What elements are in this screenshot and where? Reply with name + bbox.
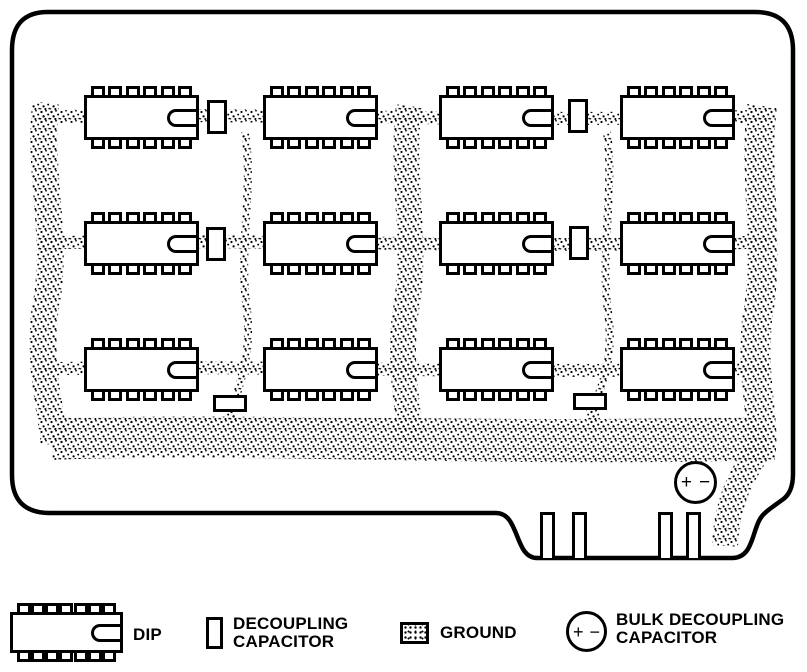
dip-pin [644, 389, 658, 401]
dip-pins [270, 212, 371, 224]
dip-notch [167, 235, 196, 253]
dip-pin [714, 212, 728, 224]
ground-icon [400, 622, 429, 644]
dip-pin [340, 263, 354, 275]
dip-pin [91, 212, 105, 224]
dip-pin [178, 338, 192, 350]
board-components [0, 0, 807, 672]
dip-chip [439, 221, 554, 266]
dip-pins [627, 263, 728, 275]
dip-pins [91, 137, 192, 149]
dip-pin [270, 389, 284, 401]
dip-pin [498, 338, 512, 350]
dip-pin [102, 650, 116, 662]
decoupling-capacitor [213, 395, 247, 412]
edge-connector-finger [658, 512, 673, 558]
decoupling-capacitor [569, 226, 589, 260]
dip-pin [161, 338, 175, 350]
dip-chip [439, 347, 554, 392]
dip-pin [533, 338, 547, 350]
dip-notch [91, 624, 120, 642]
dip-notch [167, 109, 196, 127]
decoupling-capacitor-icon [206, 617, 223, 649]
dip-pin [357, 338, 371, 350]
dip-pin [498, 389, 512, 401]
dip-notch [346, 109, 375, 127]
dip-pin [533, 86, 547, 98]
dip-pin [644, 263, 658, 275]
dip-notch [522, 235, 551, 253]
dip-pin [481, 389, 495, 401]
dip-chip [620, 347, 735, 392]
dip-pin [498, 86, 512, 98]
dip-pin [161, 137, 175, 149]
dip-pin [161, 86, 175, 98]
dip-pin [697, 137, 711, 149]
dip-pin [697, 86, 711, 98]
dip-pin [662, 137, 676, 149]
dip-pin [126, 338, 140, 350]
dip-chip [439, 95, 554, 140]
dip-pin [627, 212, 641, 224]
dip-pin [446, 212, 460, 224]
dip-pin [679, 338, 693, 350]
dip-chip [84, 347, 199, 392]
dip-pin [662, 86, 676, 98]
dip-pin [45, 650, 59, 662]
dip-pin [143, 137, 157, 149]
dip-pin [516, 263, 530, 275]
dip-pin [287, 263, 301, 275]
dip-pin [357, 263, 371, 275]
dip-pins [91, 212, 192, 224]
dip-pin [627, 137, 641, 149]
dip-pin [627, 86, 641, 98]
dip-pin [91, 86, 105, 98]
dip-pin [305, 263, 319, 275]
dip-chip [263, 95, 378, 140]
decoupling-capacitor [568, 99, 588, 133]
dip-pin [340, 212, 354, 224]
dip-pin [516, 389, 530, 401]
dip-pin [697, 338, 711, 350]
dip-pin [481, 338, 495, 350]
legend-label-ground: GROUND [440, 624, 517, 642]
dip-pin [322, 389, 336, 401]
dip-pin [679, 389, 693, 401]
dip-icon [10, 612, 123, 653]
dip-pin [662, 338, 676, 350]
dip-pin [498, 212, 512, 224]
decoupling-capacitor [573, 393, 607, 410]
dip-pins [627, 212, 728, 224]
edge-connector-finger [686, 512, 701, 558]
dip-pin [446, 338, 460, 350]
dip-pin [17, 650, 31, 662]
dip-pins [17, 650, 116, 662]
dip-pin [126, 389, 140, 401]
dip-pin [143, 86, 157, 98]
dip-pin [305, 212, 319, 224]
dip-pin [322, 263, 336, 275]
dip-pin [644, 137, 658, 149]
dip-pin [340, 137, 354, 149]
dip-pin [91, 338, 105, 350]
dip-pin [161, 263, 175, 275]
dip-notch [346, 235, 375, 253]
dip-pins [91, 263, 192, 275]
dip-chip [84, 221, 199, 266]
dip-pin [714, 389, 728, 401]
dip-pins [91, 389, 192, 401]
dip-pin [498, 137, 512, 149]
dip-pin [340, 86, 354, 98]
dip-pins [91, 338, 192, 350]
dip-pin [305, 137, 319, 149]
dip-notch [522, 109, 551, 127]
dip-pin [108, 212, 122, 224]
dip-pin [108, 86, 122, 98]
dip-pin [340, 338, 354, 350]
plus-symbol: + [681, 473, 692, 492]
dip-pin [714, 137, 728, 149]
dip-pin [627, 263, 641, 275]
dip-pin [126, 137, 140, 149]
dip-pin [644, 86, 658, 98]
dip-pin [481, 137, 495, 149]
dip-pins [270, 263, 371, 275]
edge-connector-finger [540, 512, 555, 558]
dip-pin [340, 389, 354, 401]
dip-pin [463, 86, 477, 98]
dip-pins [627, 137, 728, 149]
dip-pin [178, 137, 192, 149]
dip-pin [714, 263, 728, 275]
dip-pin [516, 86, 530, 98]
dip-pin [679, 212, 693, 224]
dip-pin [143, 263, 157, 275]
dip-chip [263, 347, 378, 392]
dip-pin [102, 603, 116, 615]
dip-pin [91, 389, 105, 401]
dip-pin [108, 137, 122, 149]
dip-pin [697, 212, 711, 224]
dip-pin [322, 137, 336, 149]
dip-pin [305, 86, 319, 98]
decoupling-capacitor [207, 100, 227, 134]
dip-pin [74, 650, 88, 662]
dip-pin [446, 263, 460, 275]
dip-pin [31, 603, 45, 615]
dip-pin [305, 389, 319, 401]
dip-pin [357, 212, 371, 224]
dip-pin [161, 212, 175, 224]
dip-pin [498, 263, 512, 275]
dip-pin [287, 86, 301, 98]
bulk-decoupling-capacitor: + − [674, 461, 717, 504]
dip-pin [178, 212, 192, 224]
dip-pin [74, 603, 88, 615]
dip-pin [533, 137, 547, 149]
dip-pin [481, 86, 495, 98]
bulk-decoupling-capacitor-icon: + − [566, 611, 607, 652]
dip-pin [143, 338, 157, 350]
dip-pin [178, 389, 192, 401]
dip-pin [662, 212, 676, 224]
dip-pins [446, 263, 547, 275]
dip-chip [620, 95, 735, 140]
dip-pin [91, 263, 105, 275]
legend-label-bulk-decoupling-capacitor: BULK DECOUPLING CAPACITOR [616, 611, 784, 646]
dip-pin [287, 212, 301, 224]
dip-pin [88, 603, 102, 615]
dip-pin [287, 389, 301, 401]
dip-pin [357, 389, 371, 401]
dip-pin [126, 263, 140, 275]
dip-pins [446, 212, 547, 224]
dip-notch [703, 361, 732, 379]
dip-pin [446, 86, 460, 98]
dip-pins [17, 603, 116, 615]
dip-pin [322, 86, 336, 98]
dip-pin [463, 338, 477, 350]
dip-pin [322, 338, 336, 350]
dip-notch [703, 109, 732, 127]
dip-pin [59, 650, 73, 662]
dip-pin [108, 338, 122, 350]
dip-pin [270, 263, 284, 275]
dip-pin [463, 212, 477, 224]
legend-label-dip: DIP [133, 626, 162, 644]
plus-symbol: + [573, 623, 584, 641]
dip-pins [627, 338, 728, 350]
dip-pin [463, 389, 477, 401]
dip-pin [679, 86, 693, 98]
edge-connector-finger [572, 512, 587, 558]
dip-notch [346, 361, 375, 379]
dip-pins [270, 137, 371, 149]
dip-pin [533, 212, 547, 224]
dip-pin [108, 263, 122, 275]
dip-pin [108, 389, 122, 401]
dip-pin [143, 389, 157, 401]
dip-pin [679, 137, 693, 149]
dip-pin [463, 137, 477, 149]
dip-pin [161, 389, 175, 401]
dip-pin [463, 263, 477, 275]
dip-pin [357, 137, 371, 149]
dip-pins [627, 389, 728, 401]
dip-pin [31, 650, 45, 662]
dip-pin [91, 137, 105, 149]
dip-pin [662, 389, 676, 401]
dip-pin [481, 263, 495, 275]
dip-pins [270, 389, 371, 401]
dip-pin [178, 86, 192, 98]
dip-pin [446, 137, 460, 149]
minus-symbol: − [590, 623, 601, 641]
dip-pin [516, 137, 530, 149]
dip-pin [143, 212, 157, 224]
dip-pin [533, 263, 547, 275]
dip-pin [644, 338, 658, 350]
dip-pin [270, 137, 284, 149]
dip-pin [533, 389, 547, 401]
dip-pin [178, 263, 192, 275]
dip-pin [45, 603, 59, 615]
dip-pin [287, 338, 301, 350]
dip-pin [88, 650, 102, 662]
dip-notch [522, 361, 551, 379]
dip-pins [446, 389, 547, 401]
dip-pin [270, 212, 284, 224]
dip-pin [627, 338, 641, 350]
dip-pin [516, 212, 530, 224]
dip-pins [446, 86, 547, 98]
dip-pin [322, 212, 336, 224]
dip-pins [446, 137, 547, 149]
dip-pin [714, 338, 728, 350]
dip-pin [59, 603, 73, 615]
dip-pin [357, 86, 371, 98]
dip-pin [126, 86, 140, 98]
dip-pin [516, 338, 530, 350]
dip-pin [287, 137, 301, 149]
dip-pin [627, 389, 641, 401]
dip-pin [305, 338, 319, 350]
dip-pin [714, 86, 728, 98]
decoupling-capacitor [206, 227, 226, 261]
dip-pin [697, 263, 711, 275]
dip-pin [662, 263, 676, 275]
dip-chip [84, 95, 199, 140]
dip-pins [91, 86, 192, 98]
dip-pin [679, 263, 693, 275]
minus-symbol: − [699, 473, 710, 492]
dip-pin [270, 86, 284, 98]
dip-chip [620, 221, 735, 266]
pcb-decoupling-diagram: + − DIP DECOUPLING CAPACITOR GROUND + − … [0, 0, 807, 672]
dip-chip [263, 221, 378, 266]
dip-pin [446, 389, 460, 401]
dip-pin [17, 603, 31, 615]
dip-notch [703, 235, 732, 253]
legend-label-decoupling-capacitor: DECOUPLING CAPACITOR [233, 615, 348, 650]
dip-pin [481, 212, 495, 224]
dip-pins [446, 338, 547, 350]
dip-pins [270, 86, 371, 98]
dip-pins [627, 86, 728, 98]
dip-pins [270, 338, 371, 350]
dip-pin [270, 338, 284, 350]
dip-pin [697, 389, 711, 401]
dip-notch [167, 361, 196, 379]
dip-pin [126, 212, 140, 224]
dip-pin [644, 212, 658, 224]
